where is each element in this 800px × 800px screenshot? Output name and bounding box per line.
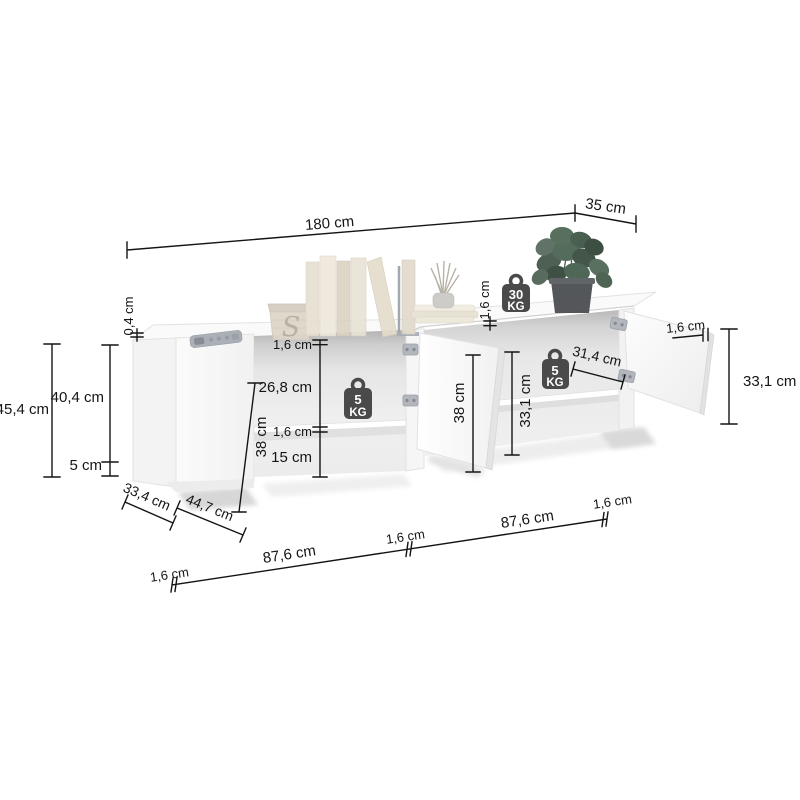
dim-top-panel-right: 1,6 cm xyxy=(477,280,496,330)
dim-label-module-width-left: 87,6 cm xyxy=(262,542,317,567)
dim-top-thickness: 0,4 cm xyxy=(121,296,143,341)
dim-label-right-interior-height: 33,1 cm xyxy=(517,374,534,427)
dim-total-width: 180 cm xyxy=(127,205,575,258)
badge-5kg-right-unit: KG xyxy=(546,377,563,389)
reed-diffuser xyxy=(431,261,459,308)
cabinet-illustration xyxy=(133,292,714,510)
dim-depth: 35 cm xyxy=(575,195,636,232)
middle-door-hinge-bottom xyxy=(403,395,418,406)
dim-label-top-panel-right: 1,6 cm xyxy=(477,280,492,319)
dim-label-gap-right: 1,6 cm xyxy=(592,491,633,512)
dim-label-shelf-thickness: 1,6 cm xyxy=(273,424,312,439)
dim-label-right-door-height: 33,1 cm xyxy=(743,373,796,390)
cabinet-left-door xyxy=(176,334,254,486)
weight-badge-30kg: 30 KG xyxy=(502,276,530,314)
dim-right-door-height: 33,1 cm xyxy=(721,329,796,424)
dimension-diagram-canvas: S xyxy=(0,0,800,800)
badge-30kg-value: 30 xyxy=(509,287,523,302)
plant-pot xyxy=(551,281,593,313)
dim-label-left-interior-height: 38 cm xyxy=(253,417,270,458)
dim-label-gap-middle: 1,6 cm xyxy=(385,526,426,547)
floor-shadow-center xyxy=(262,474,412,497)
books-group xyxy=(306,256,419,337)
dim-side-depth: 33,4 cm xyxy=(121,479,176,530)
dim-label-depth: 35 cm xyxy=(584,195,627,218)
dim-label-body-height: 40,4 cm xyxy=(51,389,104,406)
dim-total-height: 45,4 cm xyxy=(0,344,60,477)
dim-label-total-width: 180 cm xyxy=(304,213,354,234)
cabinet-left-side xyxy=(133,338,176,487)
dim-label-middle-door-height: 38 cm xyxy=(451,383,468,424)
dim-label-lower-opening: 15 cm xyxy=(271,449,312,466)
badge-5kg-left-unit: KG xyxy=(349,407,366,419)
dim-label-top-thickness: 0,4 cm xyxy=(121,296,136,335)
dim-label-panel-thickness: 1,6 cm xyxy=(273,337,312,352)
badge-5kg-right-value: 5 xyxy=(551,363,558,378)
dim-label-upper-opening: 26,8 cm xyxy=(259,379,312,396)
dim-body-height: 40,4 cm 5 cm xyxy=(51,345,118,476)
dim-label-base-height: 5 cm xyxy=(69,457,102,474)
dim-label-gap-left: 1,6 cm xyxy=(149,564,190,585)
screenshot-root: S xyxy=(0,0,800,800)
badge-5kg-left-value: 5 xyxy=(354,392,361,407)
dim-label-total-height: 45,4 cm xyxy=(0,401,49,418)
middle-door-hinge-top xyxy=(403,344,418,355)
badge-30kg-unit: KG xyxy=(507,301,524,313)
